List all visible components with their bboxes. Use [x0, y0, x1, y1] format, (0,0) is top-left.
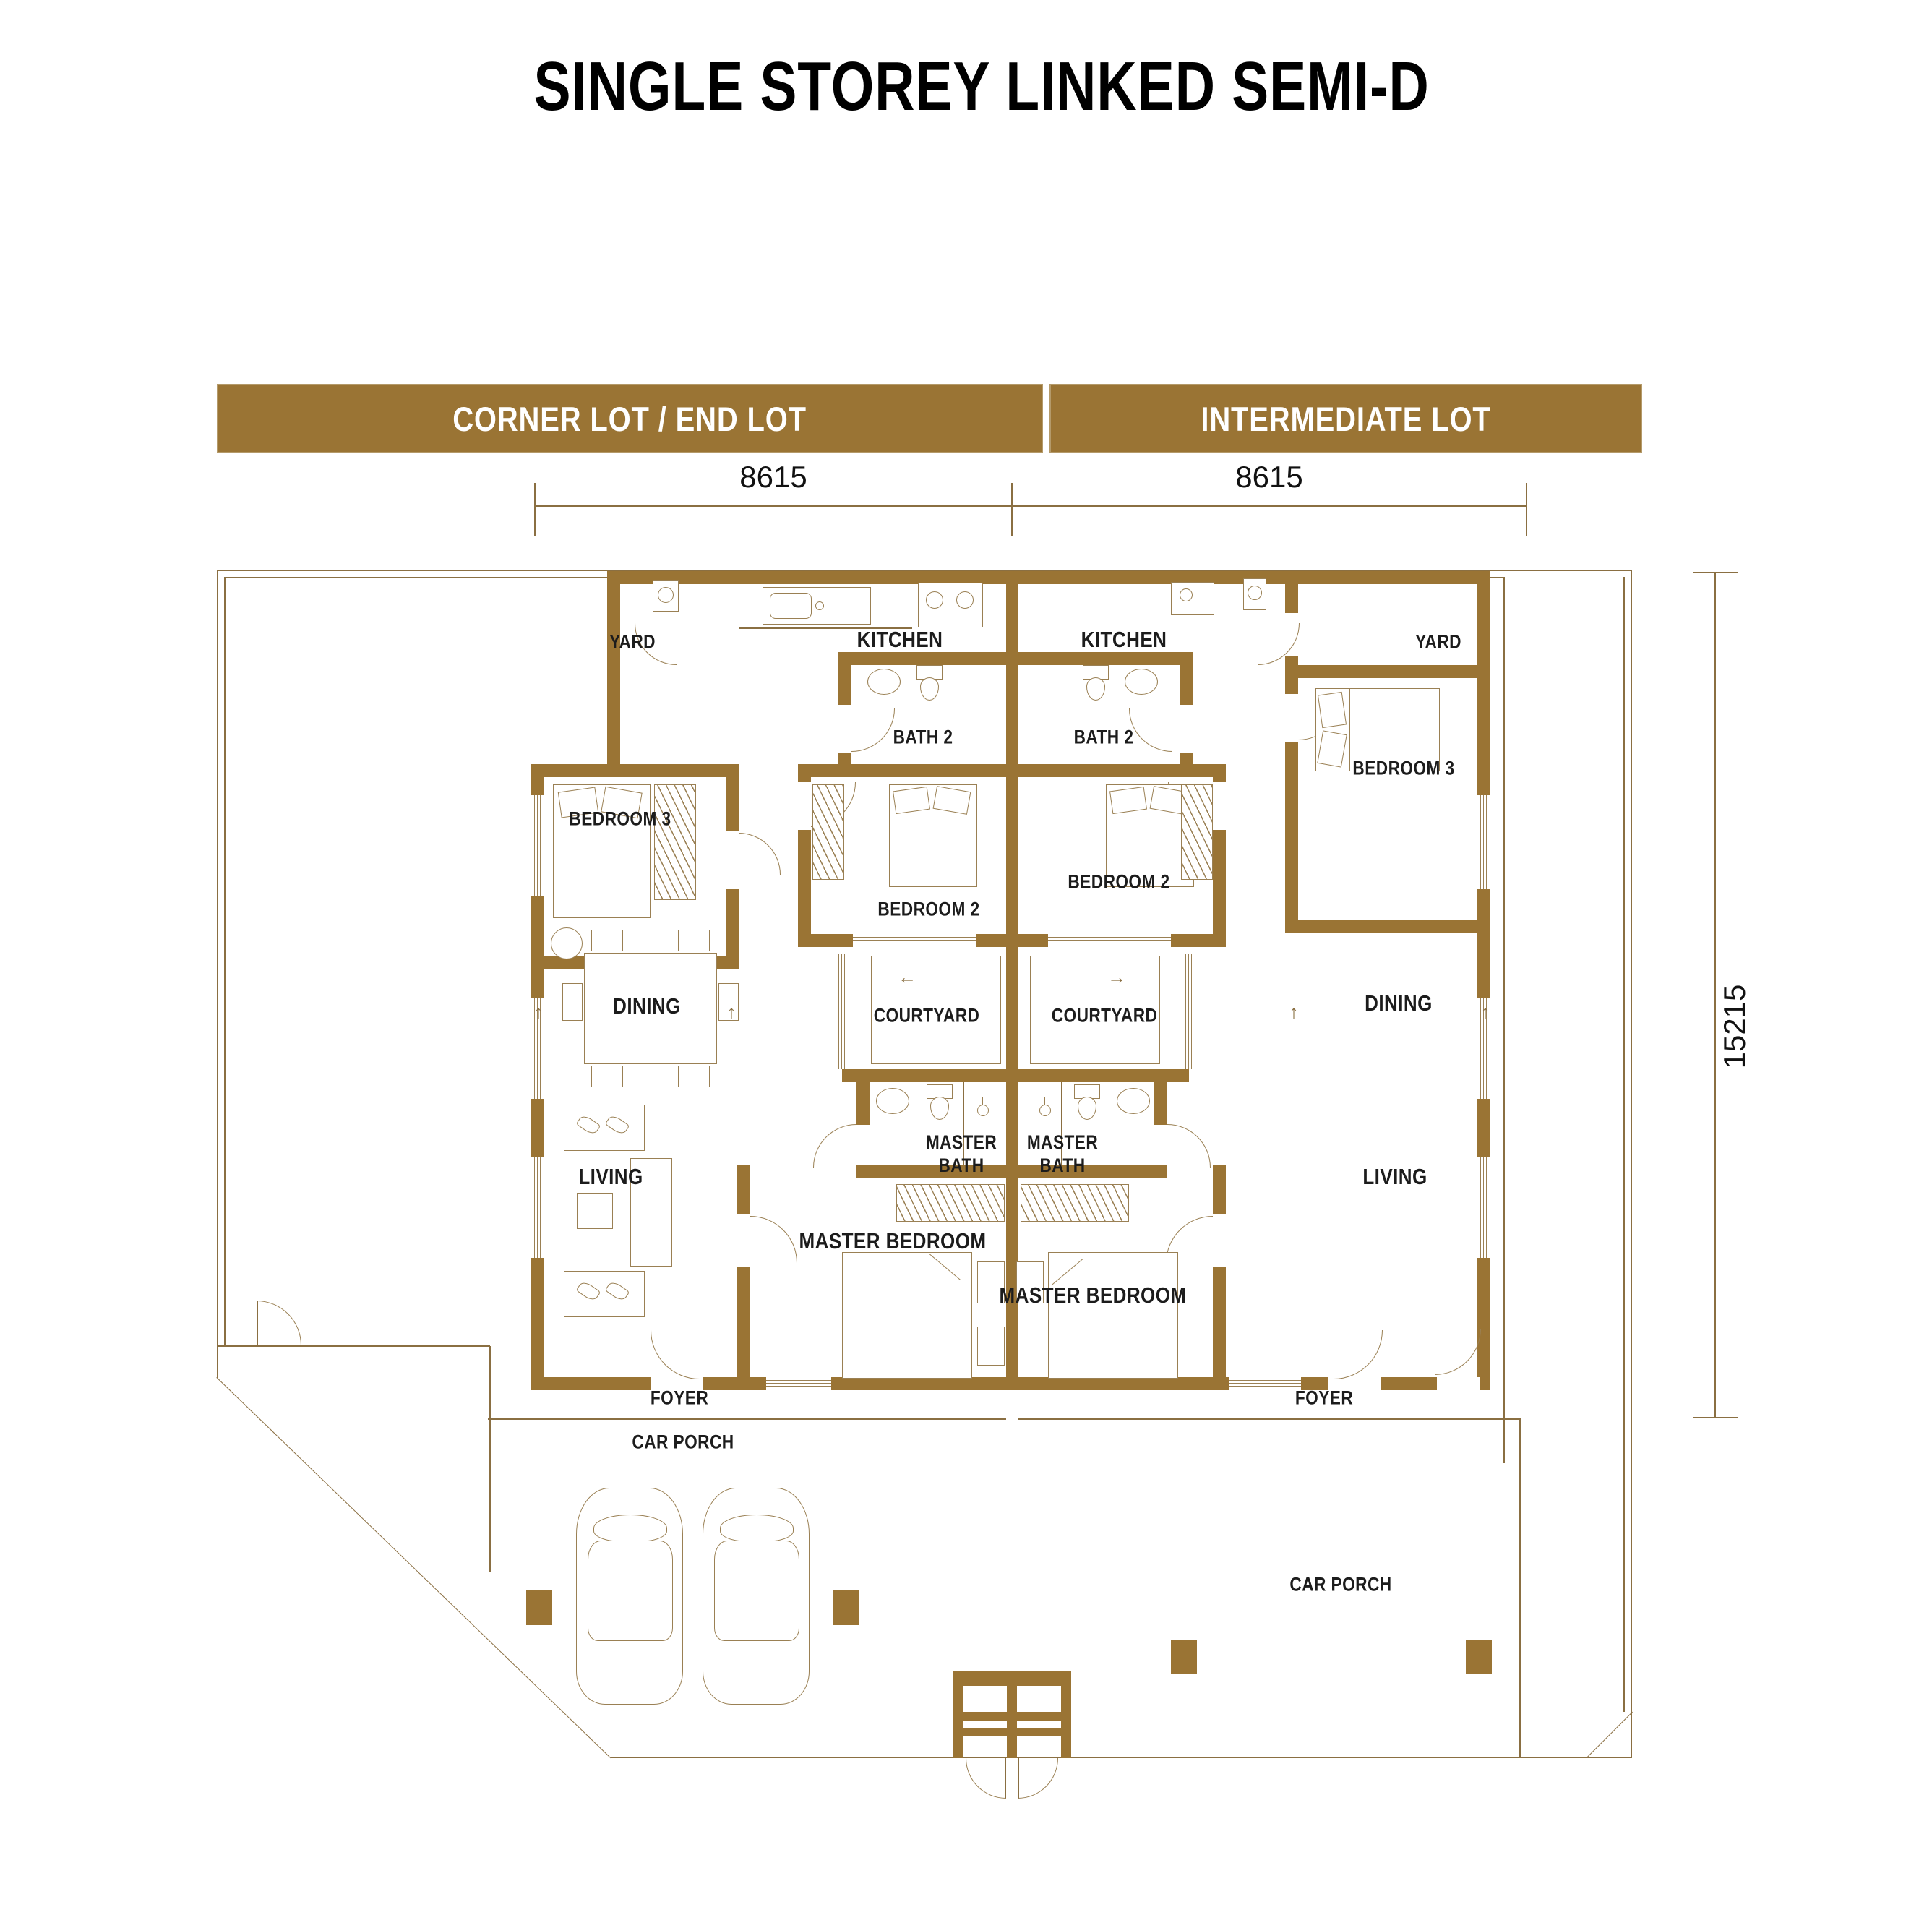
- room-label-carporch-corner: CAR PORCH: [632, 1431, 734, 1454]
- door-opening: [737, 1214, 750, 1267]
- wall: [798, 764, 1006, 777]
- coffee-table-icon: [577, 1193, 613, 1229]
- bed-icon: [889, 784, 977, 887]
- door-swing: [1129, 708, 1172, 752]
- door-opening: [1437, 1377, 1480, 1390]
- chair-icon: [635, 930, 666, 951]
- round-table-icon: [551, 927, 583, 959]
- dim-width-right: 8615: [1235, 460, 1302, 494]
- sliding-door-icon: [1048, 937, 1171, 943]
- room-label-carporch-intermediate: CAR PORCH: [1289, 1574, 1391, 1596]
- sink-basin-icon: [770, 593, 812, 619]
- pillar: [526, 1590, 552, 1625]
- door-opening: [1213, 1214, 1226, 1267]
- arrow-up-icon: ↑: [1481, 1001, 1490, 1024]
- window-icon: [1480, 795, 1487, 889]
- dim-tick: [1693, 1417, 1738, 1418]
- wall: [737, 1165, 750, 1390]
- bed-icon: [842, 1252, 972, 1379]
- dim-tick: [1693, 572, 1738, 573]
- fence-line: [489, 1346, 491, 1572]
- door-swing: [851, 708, 895, 752]
- shower-icon: [977, 1105, 989, 1116]
- room-label-masterbedroom-corner: MASTER BEDROOM: [799, 1228, 986, 1254]
- chair-icon: [678, 1066, 710, 1087]
- courtyard-window-right: [1185, 954, 1192, 1069]
- window-icon: [1229, 1380, 1301, 1387]
- basin-icon: [867, 669, 901, 695]
- dim-tick: [1526, 483, 1527, 536]
- door-swing: [739, 833, 781, 875]
- window-icon: [1480, 1157, 1487, 1258]
- wall: [1018, 764, 1226, 777]
- side-gate-leaf: [257, 1301, 258, 1345]
- side-gate-swing: [257, 1301, 301, 1345]
- boundary-chamfer: [1587, 1712, 1633, 1757]
- room-label-masterbath-intermediate: MASTER BATH: [1017, 1131, 1108, 1178]
- side-yard-line: [1503, 577, 1505, 1463]
- room-label-bedroom3-intermediate: BEDROOM 3: [1352, 758, 1454, 780]
- sofa-icon: [564, 1271, 645, 1317]
- toilet-icon: [916, 665, 943, 680]
- washer-drum-icon: [1248, 586, 1262, 600]
- room-label-masterbath-corner: MASTER BATH: [916, 1131, 1007, 1178]
- gate-beam: [953, 1728, 1071, 1736]
- burner-icon: [926, 591, 943, 609]
- arrow-up-icon: ↑: [727, 1001, 737, 1024]
- gate-beam: [953, 1712, 1071, 1721]
- sink-drain-icon: [1180, 588, 1193, 601]
- door-swing: [1334, 1330, 1383, 1379]
- dim-width-left: 8615: [739, 460, 807, 494]
- wall: [1213, 1165, 1226, 1390]
- room-label-dining-corner: DINING: [613, 993, 681, 1019]
- window-icon: [766, 1380, 831, 1387]
- basin-icon: [1125, 669, 1158, 695]
- boundary-line: [1623, 577, 1625, 1712]
- room-label-kitchen-corner: KITCHEN: [857, 627, 943, 653]
- burner-icon: [956, 591, 974, 609]
- wall: [1477, 571, 1490, 1390]
- chair-icon: [562, 983, 583, 1021]
- porch-line: [488, 1418, 1006, 1420]
- door-swing: [1435, 1329, 1481, 1375]
- sink-drain-icon: [815, 601, 824, 610]
- room-label-kitchen-intermediate: KITCHEN: [1081, 627, 1167, 653]
- arrow-up-icon: ↑: [534, 1001, 544, 1024]
- wardrobe-icon: [896, 1184, 1005, 1222]
- shower-icon: [1039, 1105, 1051, 1116]
- door-opening: [856, 1125, 870, 1167]
- arrow-up-icon: ↑: [1289, 1001, 1299, 1024]
- wall: [607, 571, 620, 777]
- wall: [1285, 920, 1490, 933]
- chair-icon: [591, 1066, 623, 1087]
- sofa-icon: [564, 1105, 645, 1151]
- arrow-right-icon: →: [1107, 967, 1126, 989]
- chair-icon: [635, 1066, 666, 1087]
- room-label-bedroom2-intermediate: BEDROOM 2: [1068, 871, 1169, 894]
- porch-line: [1018, 1418, 1519, 1420]
- chair-icon: [678, 930, 710, 951]
- room-label-foyer-corner: FOYER: [651, 1387, 708, 1410]
- room-label-yard-intermediate: YARD: [1415, 631, 1461, 654]
- door-opening: [1180, 705, 1193, 753]
- boundary-line: [224, 577, 226, 1346]
- bed-icon: [553, 784, 651, 918]
- boundary-line: [611, 1757, 1632, 1758]
- wardrobe-icon: [654, 784, 696, 900]
- boundary-line: [1631, 570, 1632, 1758]
- room-label-courtyard-corner: COURTYARD: [874, 1005, 980, 1027]
- fence-line: [217, 1345, 490, 1347]
- room-label-courtyard-intermediate: COURTYARD: [1052, 1005, 1158, 1027]
- sliding-door-icon: [853, 937, 976, 943]
- wardrobe-icon: [812, 784, 844, 880]
- room-label-dining-intermediate: DINING: [1365, 990, 1433, 1016]
- car-icon: [576, 1488, 683, 1705]
- dim-line: [1714, 573, 1716, 1418]
- washer-drum-icon: [658, 587, 674, 603]
- toilet-icon: [1083, 665, 1109, 680]
- boundary-chamfer: [216, 1377, 611, 1758]
- header-corner-lot: CORNER LOT / END LOT: [217, 384, 1043, 453]
- room-label-living-corner: LIVING: [578, 1164, 643, 1190]
- door-swing: [750, 1216, 797, 1263]
- door-opening: [798, 782, 811, 830]
- gate-swing: [966, 1758, 1006, 1799]
- arrow-left-icon: ←: [898, 967, 916, 989]
- basin-icon: [1117, 1088, 1150, 1114]
- door-swing: [813, 1124, 856, 1168]
- dim-height: 15215: [1717, 985, 1752, 1069]
- pillar: [1466, 1640, 1492, 1674]
- header-intermediate-lot-label: INTERMEDIATE LOT: [1201, 399, 1490, 439]
- header-corner-lot-label: CORNER LOT / END LOT: [453, 399, 807, 439]
- room-label-yard-corner: YARD: [609, 631, 656, 654]
- door-swing: [651, 1330, 700, 1379]
- door-opening: [838, 705, 851, 753]
- wall: [1285, 665, 1490, 678]
- page-title: SINGLE STOREY LINKED SEMI-D: [533, 47, 1429, 127]
- pillar: [833, 1590, 859, 1625]
- wardrobe-icon: [1181, 784, 1213, 880]
- door-opening: [726, 831, 739, 889]
- door-swing: [1167, 1124, 1211, 1168]
- porch-line: [1519, 1418, 1521, 1758]
- pillar: [1171, 1640, 1197, 1674]
- car-icon: [703, 1488, 810, 1705]
- room-label-bedroom2-corner: BEDROOM 2: [877, 899, 979, 921]
- dim-line: [535, 505, 1527, 507]
- bed-icon: [1048, 1252, 1178, 1379]
- boundary-line: [217, 570, 218, 1378]
- chair-icon: [591, 930, 623, 951]
- toilet-icon: [927, 1084, 953, 1099]
- side-table-icon: [977, 1327, 1005, 1366]
- door-opening: [1213, 782, 1226, 830]
- room-label-bedroom3-corner: BEDROOM 3: [569, 808, 671, 831]
- wardrobe-icon: [1021, 1184, 1129, 1222]
- dim-tick: [1011, 483, 1013, 536]
- gate-swing: [1018, 1758, 1058, 1799]
- wall: [838, 652, 1006, 665]
- window-icon: [534, 795, 541, 896]
- kitchen-sink-icon: [1171, 582, 1214, 615]
- floor-plan-sheet: SINGLE STOREY LINKED SEMI-D CORNER LOT /…: [0, 0, 1932, 1915]
- header-intermediate-lot: INTERMEDIATE LOT: [1049, 384, 1642, 453]
- basin-icon: [876, 1088, 909, 1114]
- toilet-icon: [1074, 1084, 1100, 1099]
- door-opening: [1285, 694, 1298, 742]
- room-label-masterbedroom-intermediate: MASTER BEDROOM: [999, 1282, 1186, 1308]
- room-label-living-intermediate: LIVING: [1362, 1164, 1427, 1190]
- courtyard-window-left: [838, 954, 845, 1069]
- dim-tick: [534, 483, 536, 536]
- room-label-bath2-intermediate: BATH 2: [1074, 727, 1134, 749]
- door-opening: [1154, 1125, 1167, 1167]
- room-label-bath2-corner: BATH 2: [893, 727, 953, 749]
- wall: [531, 764, 739, 777]
- window-icon: [534, 1157, 541, 1258]
- wall: [1018, 652, 1193, 665]
- room-label-foyer-intermediate: FOYER: [1295, 1387, 1353, 1410]
